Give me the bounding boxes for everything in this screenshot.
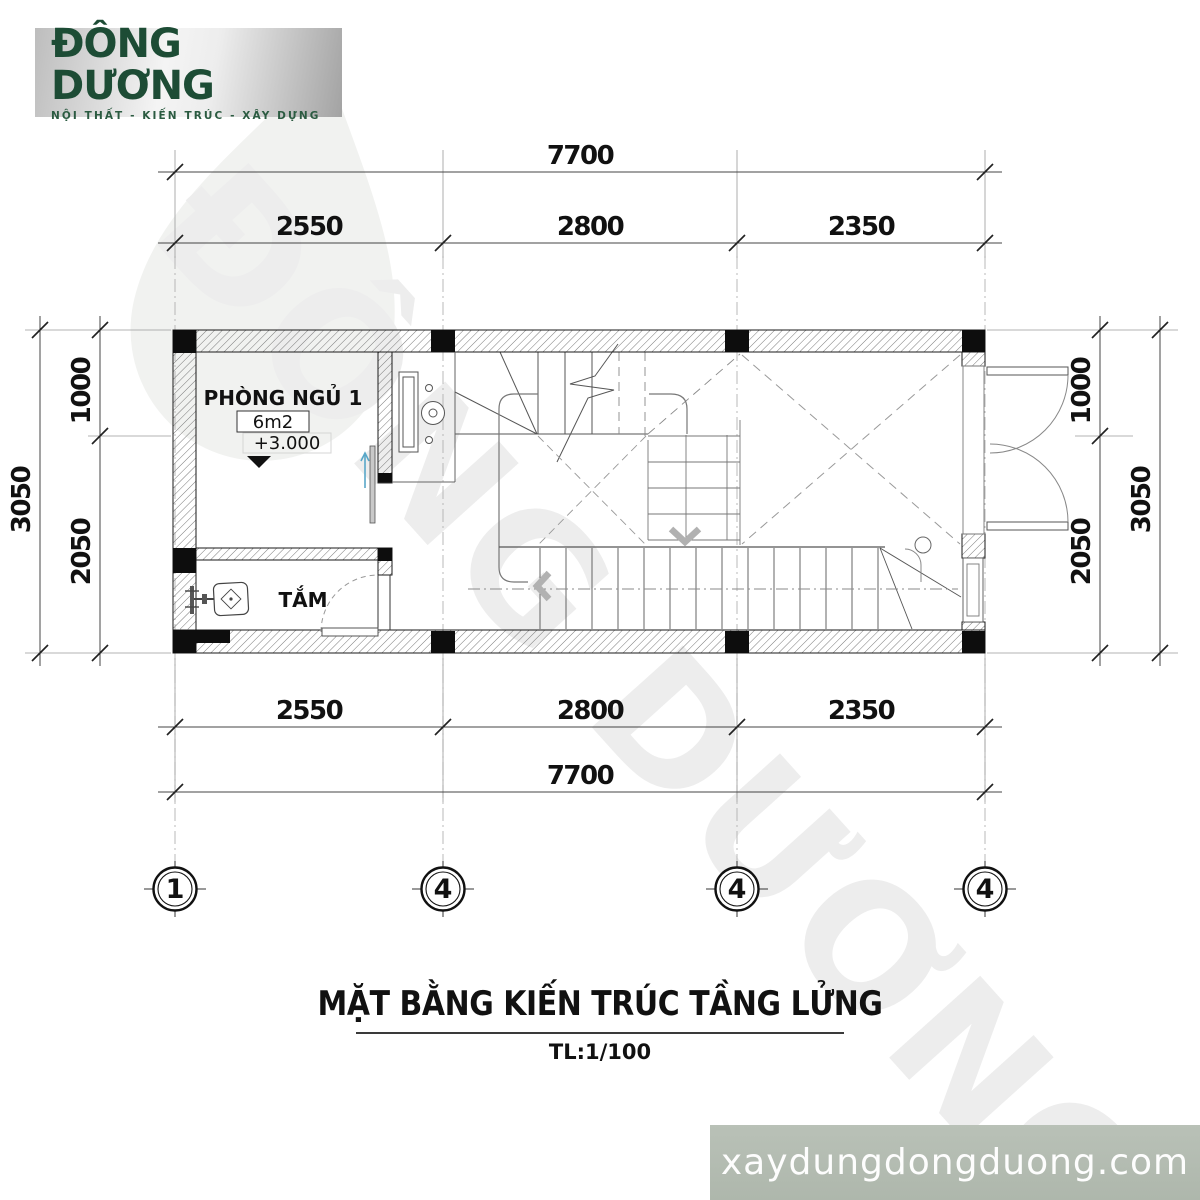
bedroom-door <box>361 446 375 523</box>
stair-handrail-hook <box>905 549 921 582</box>
dim-bottom-seg-1: 2550 <box>276 696 343 726</box>
level-marker-icon <box>247 456 271 468</box>
website-banner: xaydungdongduong.com <box>710 1125 1200 1200</box>
right-wall-window <box>963 558 983 622</box>
dim-top-seg-3: 2350 <box>828 212 895 242</box>
bath-label: TẮM <box>278 586 327 612</box>
website-url[interactable]: xaydungdongduong.com <box>721 1142 1189 1183</box>
wall-top <box>173 330 985 352</box>
door-direction-arrow-icon <box>361 453 369 488</box>
svg-text:4: 4 <box>434 874 453 905</box>
cabinet-fixture <box>392 352 455 482</box>
stair-break-line <box>557 344 618 462</box>
dim-left-seg-1: 1000 <box>67 357 97 424</box>
stair-newel-circle <box>915 537 931 553</box>
stair-winder-treads <box>648 420 740 545</box>
stair-lower-flight <box>499 547 961 629</box>
right-wall-openings <box>962 366 985 622</box>
svg-text:1: 1 <box>166 874 185 905</box>
svg-text:4: 4 <box>976 874 995 905</box>
dim-bottom-total: 7700 <box>547 761 614 791</box>
dim-left-total: 3050 <box>7 466 37 533</box>
logo-subtitle: NỘI THẤT - KIẾN TRÚC - XÂY DỰNG <box>51 110 326 122</box>
bedroom-label: PHÒNG NGỦ 1 <box>204 385 363 410</box>
bathroom-door <box>321 575 378 636</box>
dim-top-total: 7700 <box>547 141 614 171</box>
dim-right-total: 3050 <box>1127 466 1157 533</box>
wall-bed-bath <box>196 548 392 560</box>
entry-double-door <box>987 367 1068 530</box>
bedroom-level: +3.000 <box>254 433 321 454</box>
wall-bottom <box>173 630 985 653</box>
dim-left-seg-2: 2050 <box>67 518 97 585</box>
drawing-scale: TL:1/100 <box>0 1040 1200 1064</box>
wall-right-seg-top <box>962 352 985 366</box>
grid-bubble-2: 4 <box>412 861 474 917</box>
dim-top-seg-2: 2800 <box>557 212 624 242</box>
void-middle-x <box>538 436 646 545</box>
drawing-title: MẶT BẰNG KIẾN TRÚC TẦNG LỬNG <box>0 984 1200 1024</box>
grid-bubble-3: 4 <box>706 861 768 917</box>
wall-right-pier <box>962 534 985 558</box>
logo-title: ĐÔNG DƯƠNG <box>51 23 326 107</box>
room-labels: PHÒNG NGỦ 1 6m2 +3.000 TẮM <box>204 385 363 612</box>
dim-bottom-seg-3: 2350 <box>828 696 895 726</box>
grid-bubbles: 1 4 4 4 <box>144 861 1016 917</box>
title-underline <box>356 1032 844 1034</box>
dim-right-seg-2: 2050 <box>1067 518 1097 585</box>
wall-bedroom-vertical <box>378 352 392 483</box>
grid-bubble-1: 1 <box>144 861 206 917</box>
void-right-x <box>742 355 960 544</box>
wall-right-seg-bottom <box>962 622 985 630</box>
page: ĐÔNG DƯƠNG ĐÔNG DƯƠNG NỘI THẤT - KIẾN TR… <box>0 0 1200 1200</box>
dim-bottom-seg-2: 2800 <box>557 696 624 726</box>
staircase <box>455 344 961 629</box>
company-logo: ĐÔNG DƯƠNG NỘI THẤT - KIẾN TRÚC - XÂY DỰ… <box>35 28 342 117</box>
dim-right-seg-1: 1000 <box>1067 357 1097 424</box>
bedroom-area: 6m2 <box>253 412 293 433</box>
grid-bubble-4: 4 <box>954 861 1016 917</box>
drawing-title-text: MẶT BẰNG KIẾN TRÚC TẦNG LỬNG <box>318 984 883 1024</box>
stair-arrow-left-icon <box>537 573 549 599</box>
svg-text:4: 4 <box>728 874 747 905</box>
dim-top-seg-1: 2550 <box>276 212 343 242</box>
